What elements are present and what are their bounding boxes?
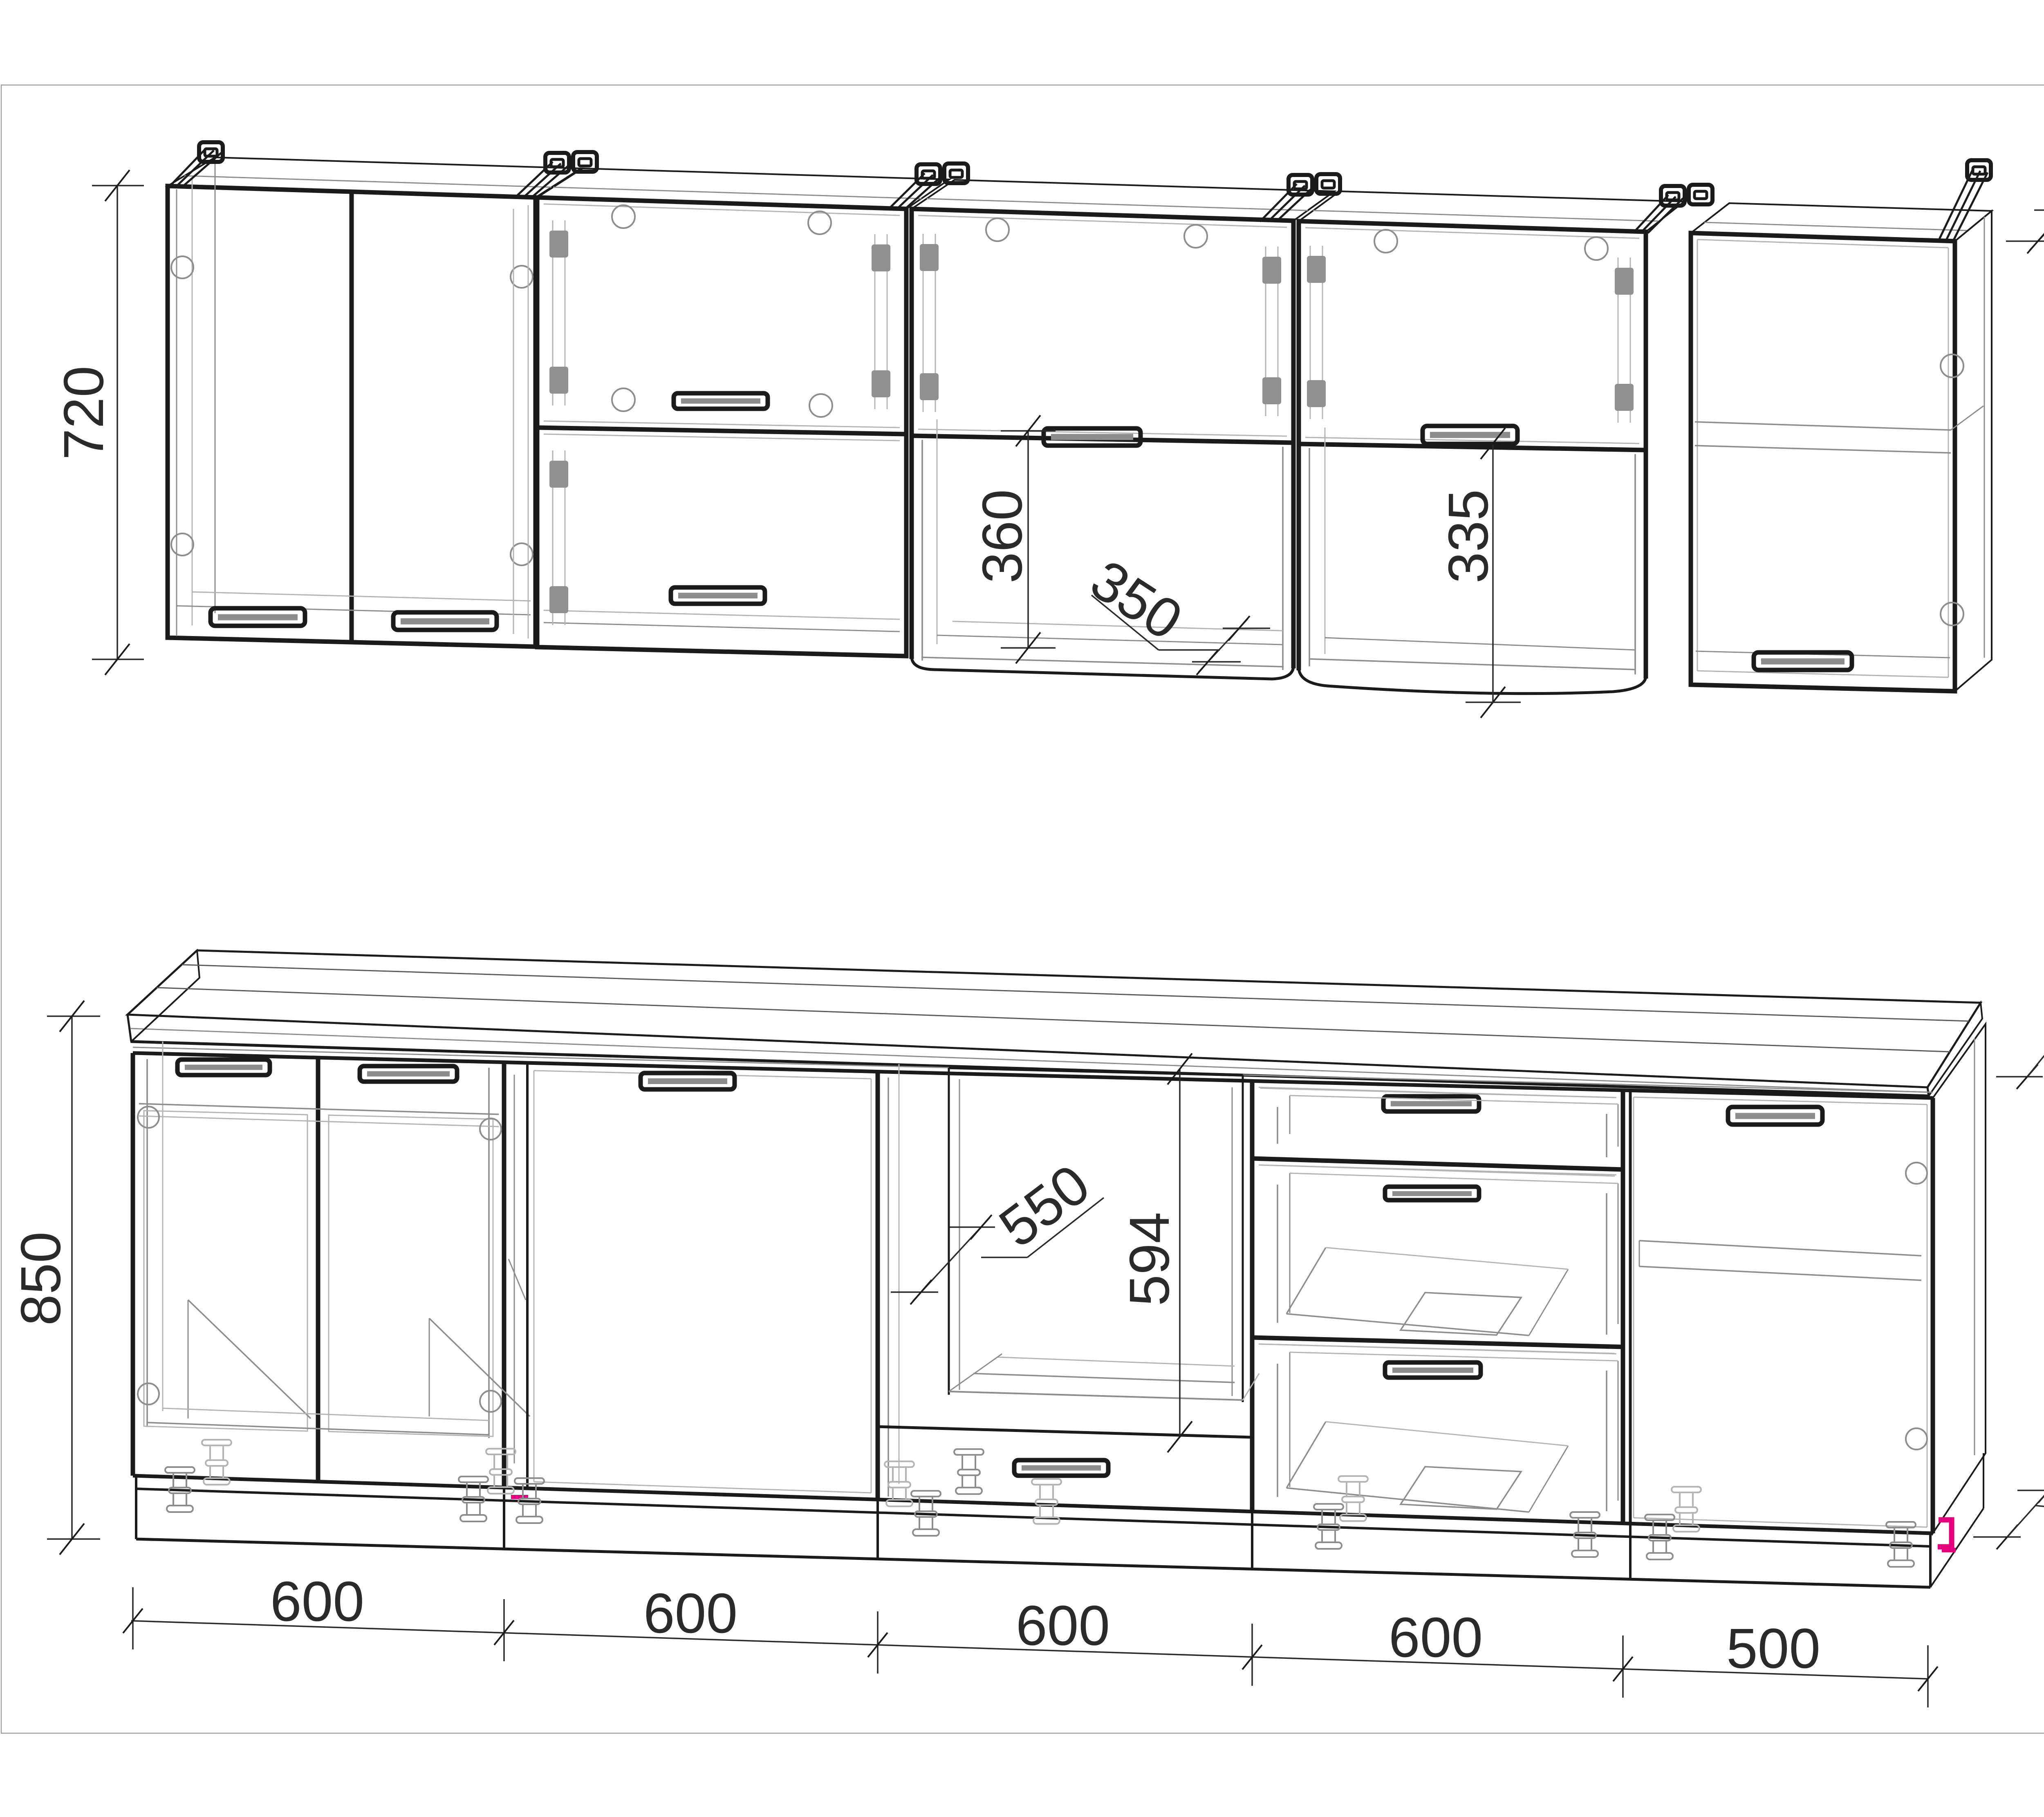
svg-text:600: 600	[1389, 1606, 1483, 1669]
svg-text:600: 600	[643, 1582, 737, 1645]
svg-text:500: 500	[1726, 1617, 1820, 1680]
svg-text:360: 360	[971, 489, 1034, 583]
svg-text:720: 720	[52, 366, 115, 460]
svg-text:600: 600	[270, 1570, 364, 1633]
svg-text:600: 600	[1016, 1594, 1110, 1657]
svg-text:594: 594	[1118, 1212, 1181, 1306]
svg-text:335: 335	[1437, 489, 1500, 583]
svg-text:550: 550	[988, 1152, 1101, 1259]
svg-text:350: 350	[1080, 548, 1193, 652]
svg-text:850: 850	[9, 1232, 72, 1326]
